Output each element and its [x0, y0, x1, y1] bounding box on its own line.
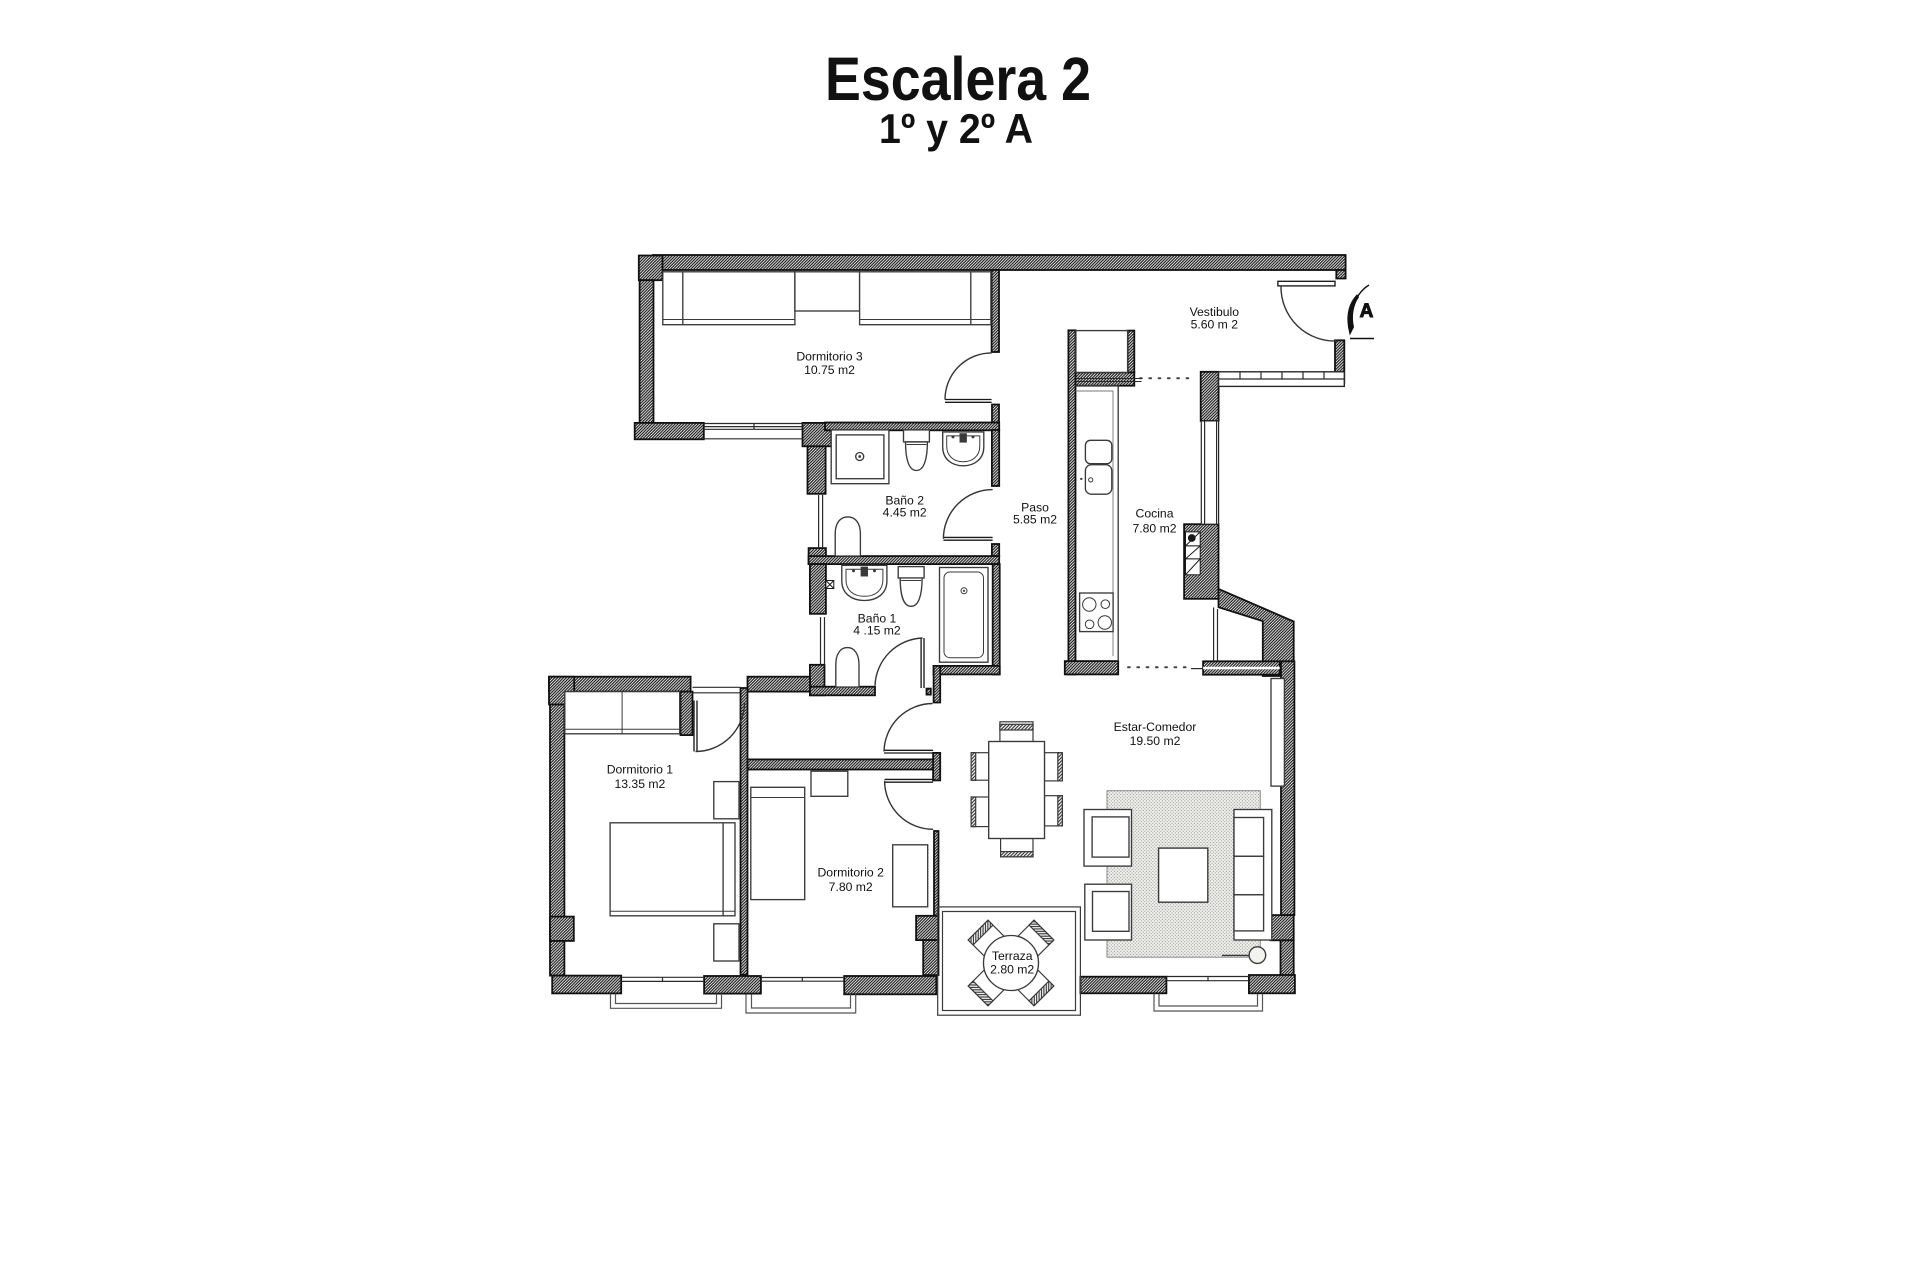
svg-text:4 .15 m2: 4 .15 m2: [853, 624, 901, 638]
svg-text:Estar-Comedor: Estar-Comedor: [1114, 720, 1197, 734]
svg-text:2.80 m2: 2.80 m2: [990, 963, 1034, 977]
svg-text:1º y 2º A: 1º y 2º A: [879, 105, 1033, 152]
svg-text:Terraza: Terraza: [992, 949, 1033, 963]
svg-text:Cocina: Cocina: [1136, 507, 1174, 521]
svg-text:10.75 m2: 10.75 m2: [804, 363, 855, 377]
svg-text:4.45 m2: 4.45 m2: [883, 506, 927, 520]
svg-text:A: A: [1360, 301, 1374, 322]
svg-text:5.60 m 2: 5.60 m 2: [1191, 318, 1239, 332]
svg-text:5.85 m2: 5.85 m2: [1013, 513, 1057, 527]
svg-text:19.50 m2: 19.50 m2: [1130, 734, 1181, 748]
svg-text:13.35 m2: 13.35 m2: [614, 777, 665, 791]
svg-text:7.80 m2: 7.80 m2: [1132, 522, 1176, 536]
svg-text:Escalera 2: Escalera 2: [825, 45, 1091, 113]
svg-text:Dormitorio 1: Dormitorio 1: [607, 763, 674, 777]
svg-text:7.80 m2: 7.80 m2: [829, 880, 873, 894]
svg-text:Dormitorio 2: Dormitorio 2: [818, 865, 885, 879]
svg-text:Dormitorio 3: Dormitorio 3: [796, 350, 863, 364]
